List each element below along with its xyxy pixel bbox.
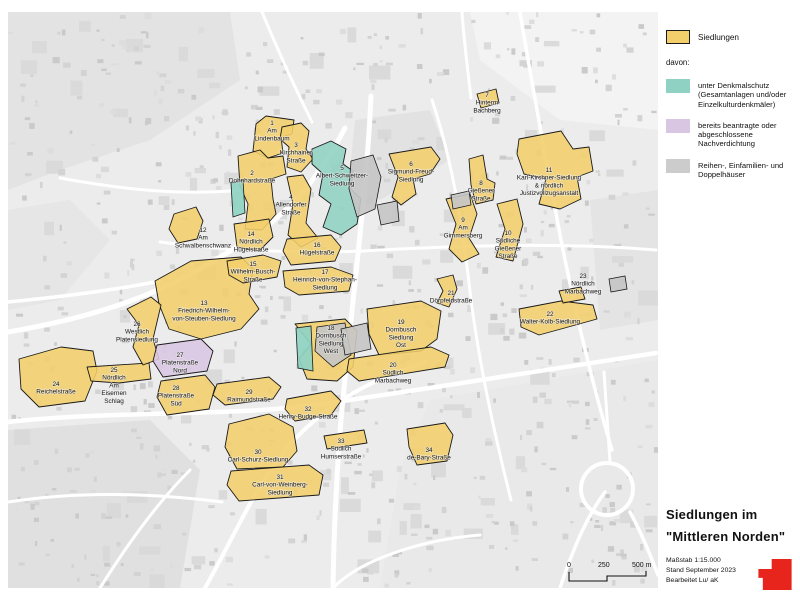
legend-row-2: Reihen-, Einfamilien- und Doppelhäuser (666, 159, 794, 180)
legend: Siedlungen davon: unter Denkmalschutz (G… (658, 0, 800, 179)
map-meta: Maßstab 1:15.000Stand September 2023Bear… (666, 556, 758, 586)
legend-swatch-0 (666, 79, 690, 93)
stadtplanungsamt-logo (758, 559, 792, 590)
scale-label-1: 250 (598, 562, 610, 569)
meta-row: Maßstab 1:15.000Stand September 2023Bear… (666, 556, 794, 590)
legend-row-siedlungen: Siedlungen (666, 30, 794, 44)
legend-swatch-siedlungen (666, 30, 690, 44)
legend-swatch-1 (666, 119, 690, 133)
scale-label-0: 0 (567, 562, 571, 569)
legend-item-label: Reihen-, Einfamilien- und Doppelhäuser (698, 159, 794, 180)
map-patch-gray (609, 276, 627, 292)
legend-item-label: unter Denkmalschutz (Gesamtanlagen und/o… (698, 79, 794, 109)
legend-row-1: bereits beantragte oder abgeschlossene N… (666, 119, 794, 149)
basemap: 1AmLindenbaum2Dohnhardstraße3Kirchhainer… (8, 12, 660, 591)
page: 1AmLindenbaum2Dohnhardstraße3Kirchhainer… (0, 0, 800, 600)
title-block: Siedlungen im "Mittleren Norden" Maßstab… (666, 507, 794, 590)
settlement-area-24 (19, 347, 97, 407)
legend-davon-label: davon: (666, 58, 794, 67)
legend-item-label: bereits beantragte oder abgeschlossene N… (698, 119, 794, 149)
legend-label-siedlungen: Siedlungen (698, 30, 739, 43)
map-patch-teal (231, 180, 245, 217)
scale-label-2: 500 m (632, 562, 652, 569)
meta-line: Bearbeitet Lu/ aK (666, 576, 758, 586)
legend-row-0: unter Denkmalschutz (Gesamtanlagen und/o… (666, 79, 794, 109)
meta-line: Maßstab 1:15.000 (666, 556, 758, 566)
map-title-line1: Siedlungen im (666, 507, 794, 522)
map-title-line2: "Mittleren Norden" (666, 529, 794, 544)
map-patch-teal (296, 326, 313, 371)
side-panel: Siedlungen davon: unter Denkmalschutz (G… (658, 0, 800, 600)
map-patch-gray (377, 201, 399, 225)
legend-swatch-2 (666, 159, 690, 173)
meta-line: Stand September 2023 (666, 566, 758, 576)
legend-items: unter Denkmalschutz (Gesamtanlagen und/o… (666, 79, 794, 179)
